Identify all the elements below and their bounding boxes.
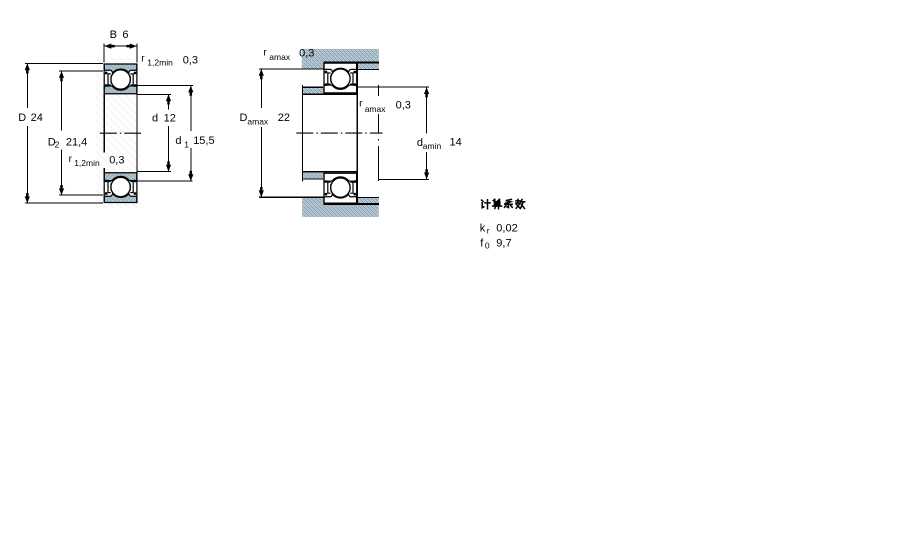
svg-text:24: 24	[31, 112, 43, 124]
svg-text:D: D	[240, 112, 248, 124]
svg-text:d: d	[152, 112, 158, 124]
svg-text:amin: amin	[423, 141, 442, 151]
svg-text:r: r	[487, 225, 490, 235]
svg-text:0,02: 0,02	[496, 223, 517, 235]
svg-text:1,2min: 1,2min	[147, 58, 173, 68]
svg-text:14: 14	[450, 137, 462, 149]
svg-text:1,2min: 1,2min	[74, 158, 100, 168]
svg-text:1: 1	[184, 139, 189, 149]
svg-text:22: 22	[278, 112, 290, 124]
svg-text:2: 2	[55, 140, 60, 150]
svg-text:amax: amax	[365, 104, 387, 114]
svg-text:B: B	[110, 29, 117, 41]
svg-text:0: 0	[485, 240, 490, 250]
svg-text:d: d	[175, 135, 181, 147]
svg-text:amax: amax	[269, 52, 291, 62]
svg-text:15,5: 15,5	[193, 135, 214, 147]
svg-text:0,3: 0,3	[396, 100, 411, 112]
svg-text:0,3: 0,3	[183, 55, 198, 67]
svg-text:D: D	[18, 112, 26, 124]
svg-text:k: k	[480, 223, 486, 235]
svg-text:9,7: 9,7	[496, 238, 511, 250]
svg-text:21,4: 21,4	[66, 136, 87, 148]
svg-text:0,3: 0,3	[299, 48, 314, 60]
svg-text:0,3: 0,3	[109, 154, 124, 166]
svg-text:amax: amax	[247, 117, 269, 127]
svg-text:12: 12	[164, 112, 176, 124]
svg-text:6: 6	[122, 29, 128, 41]
